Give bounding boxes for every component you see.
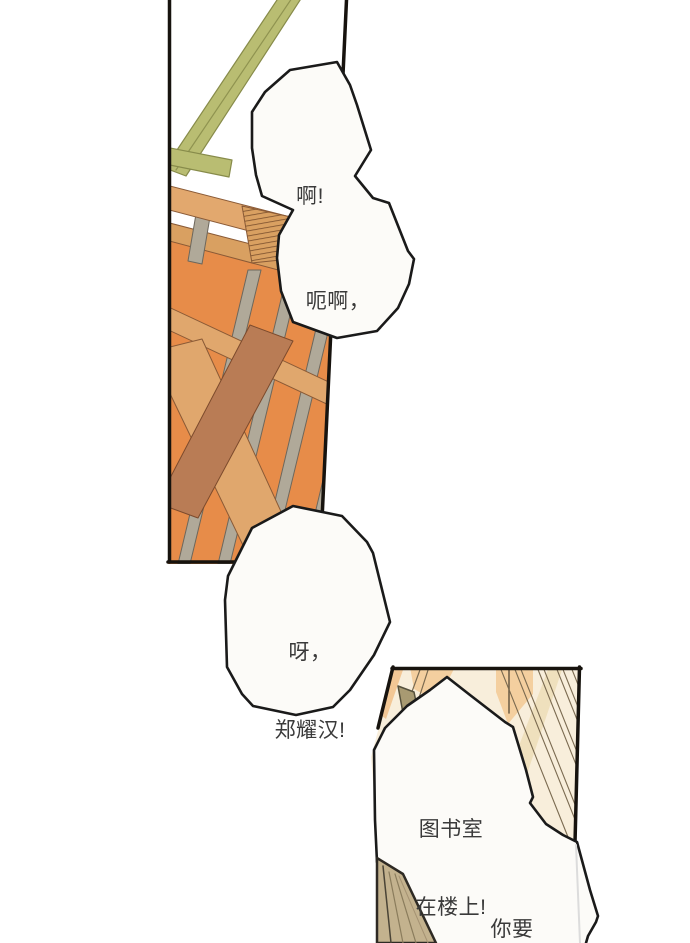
speech-line: 呀，: [235, 640, 385, 666]
speech-text-2: 呃啊，: [283, 237, 393, 367]
speech-line: 呃啊，: [283, 289, 393, 315]
speech-line: 你要: [448, 917, 576, 943]
speech-line: 图书室: [387, 817, 515, 843]
speech-line: 郑耀汉!: [235, 718, 385, 744]
speech-text-5: 你要 去哪?！: [448, 865, 576, 943]
speech-text-3: 呀， 郑耀汉!: [235, 588, 385, 796]
comic-page: 啊! 呃啊， 呀， 郑耀汉! 图书室 在楼上! 你要 去哪?！: [0, 0, 690, 943]
speech-line: 啊!: [255, 184, 365, 210]
